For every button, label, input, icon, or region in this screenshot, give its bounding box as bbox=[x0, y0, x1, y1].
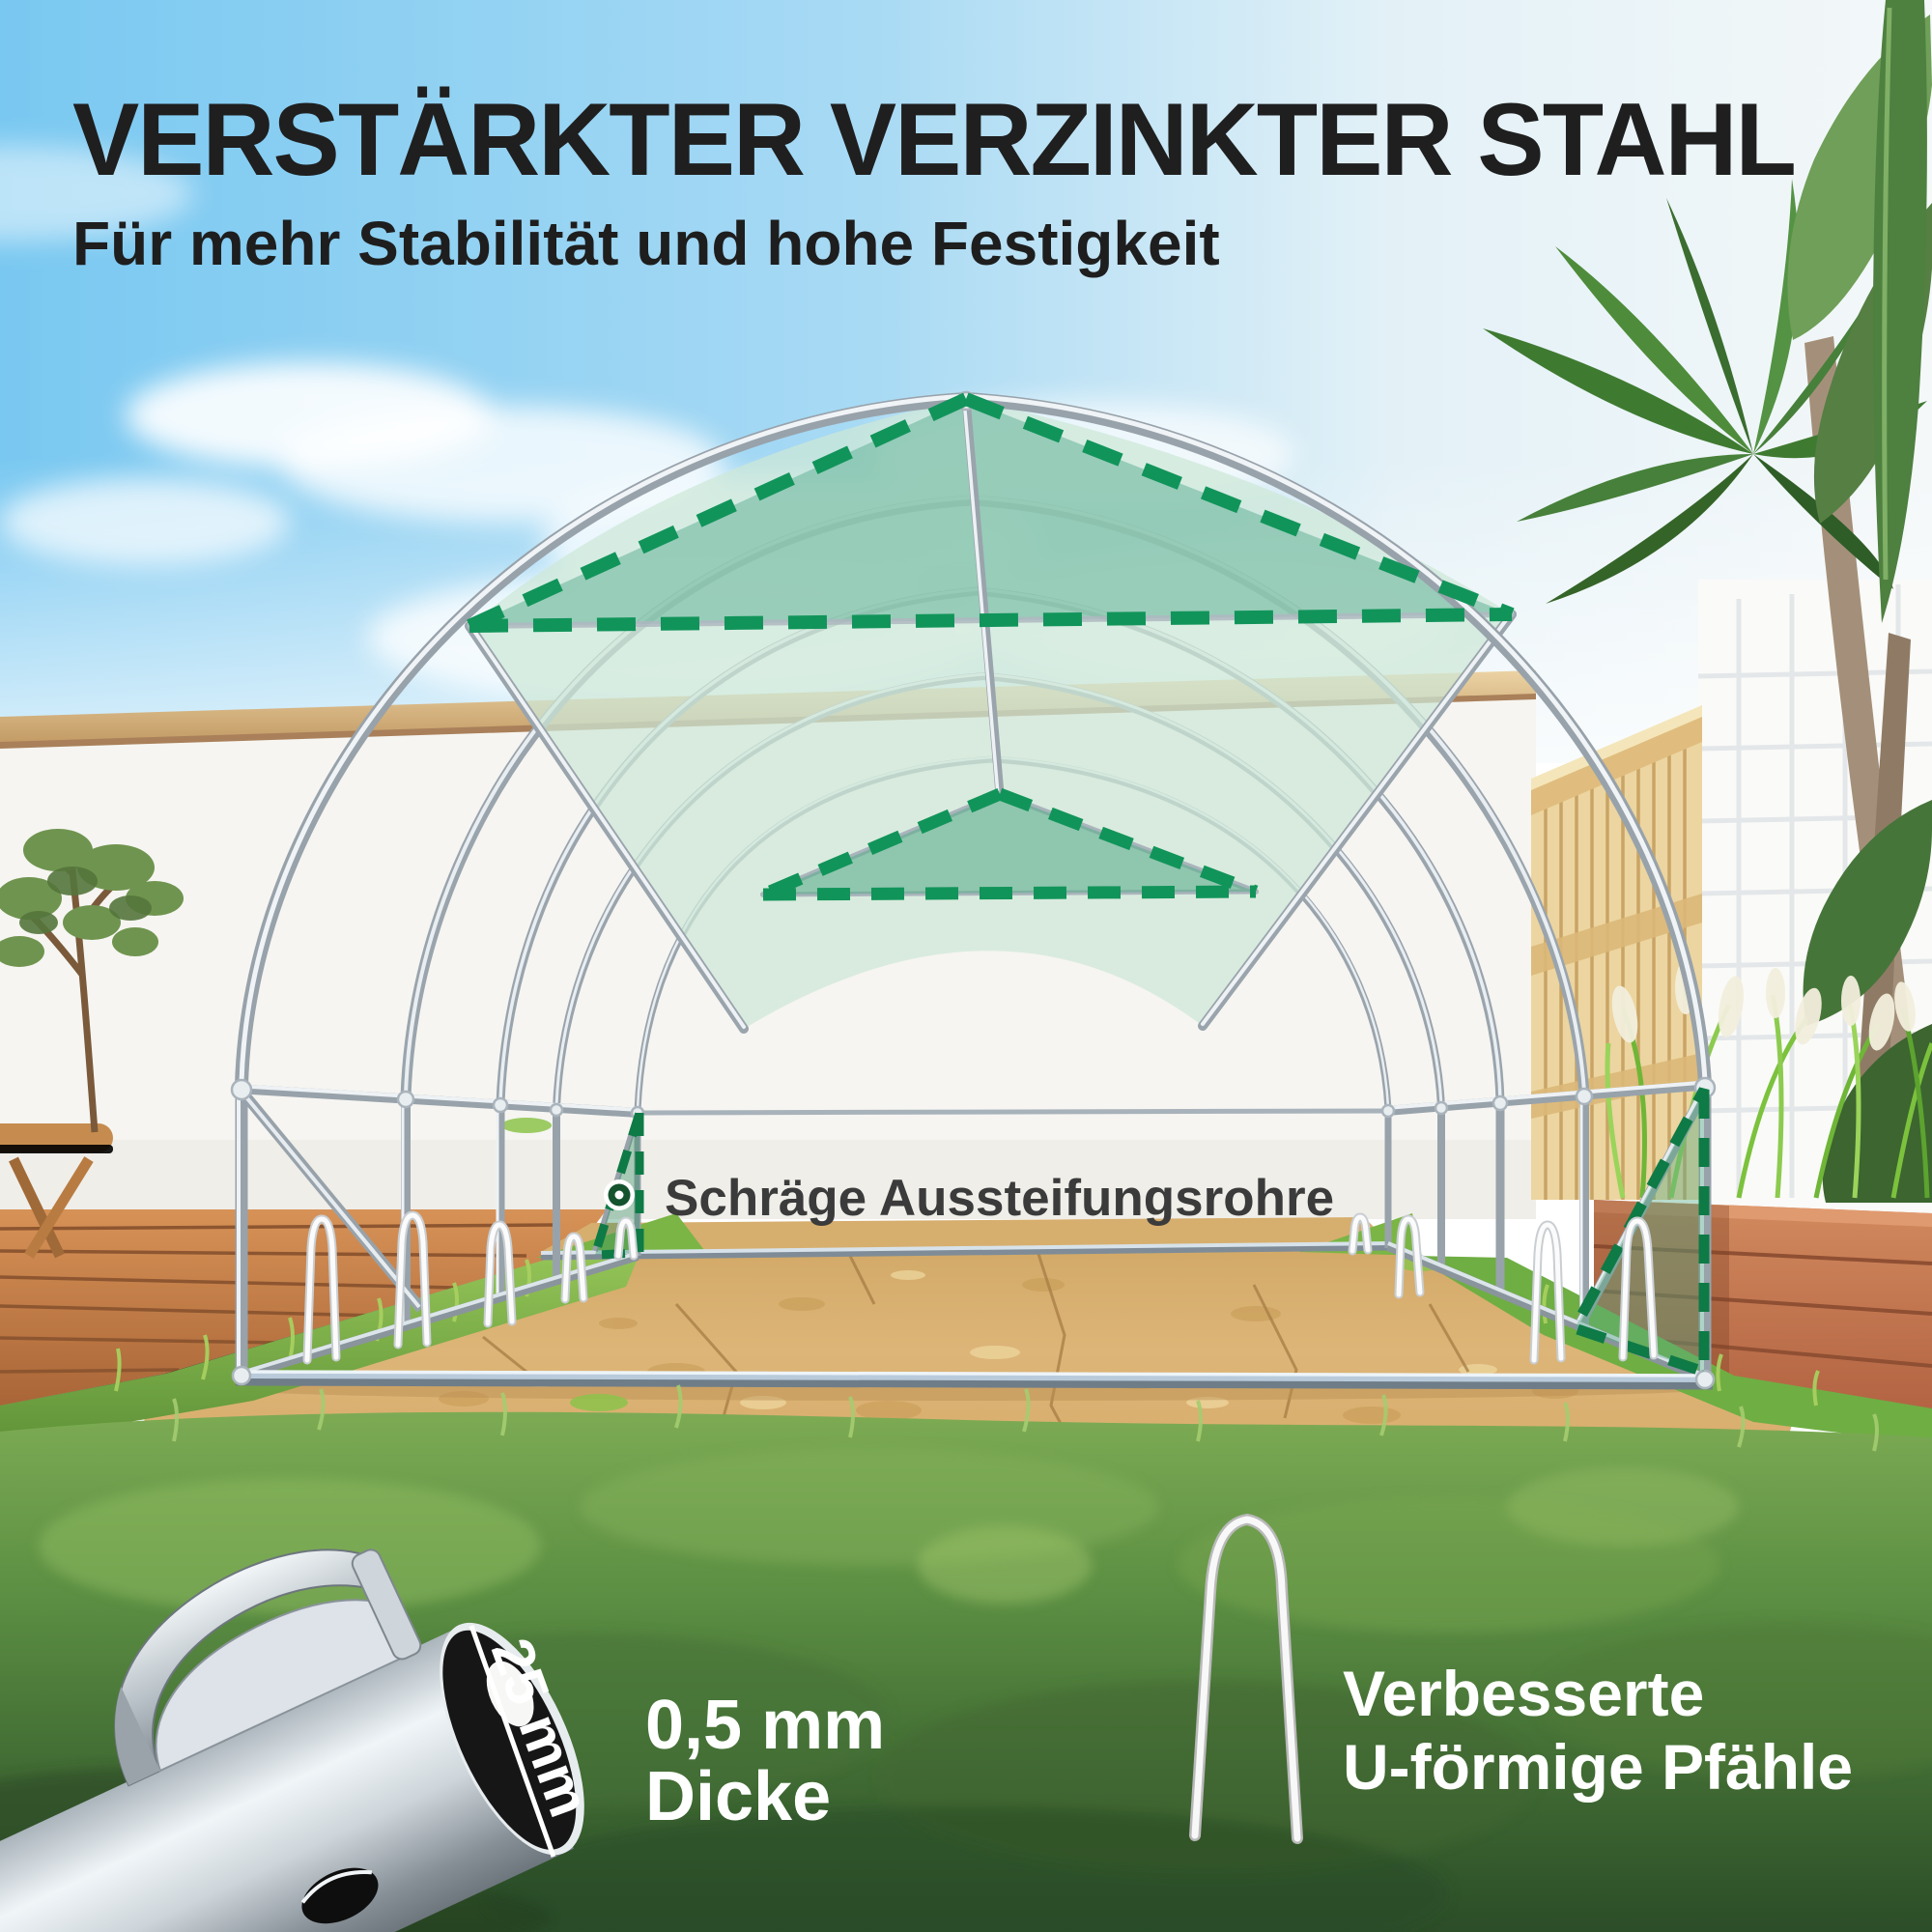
product-marketing-image: Schräge Aussteifungsrohre 25 mm 0,5 mm D… bbox=[0, 0, 1932, 1932]
stake-line1: Verbesserte bbox=[1343, 1658, 1704, 1729]
stake-line2: U-förmige Pfähle bbox=[1343, 1731, 1853, 1803]
tube-thickness-value: 0,5 mm bbox=[645, 1687, 885, 1764]
diagonal-brace-marker-icon bbox=[604, 1179, 635, 1210]
page-title: VERSTÄRKTER VERZINKTER STAHL bbox=[72, 83, 1795, 198]
tube-thickness-unit: Dicke bbox=[645, 1758, 831, 1835]
page-subtitle: Für mehr Stabilität und hohe Festigkeit bbox=[72, 209, 1220, 278]
callout: Schräge Aussteifungsrohre bbox=[604, 1170, 1334, 1227]
greenhouse-scene: Schräge Aussteifungsrohre 25 mm 0,5 mm D… bbox=[0, 0, 1932, 1932]
callout-label: Schräge Aussteifungsrohre bbox=[665, 1170, 1334, 1227]
